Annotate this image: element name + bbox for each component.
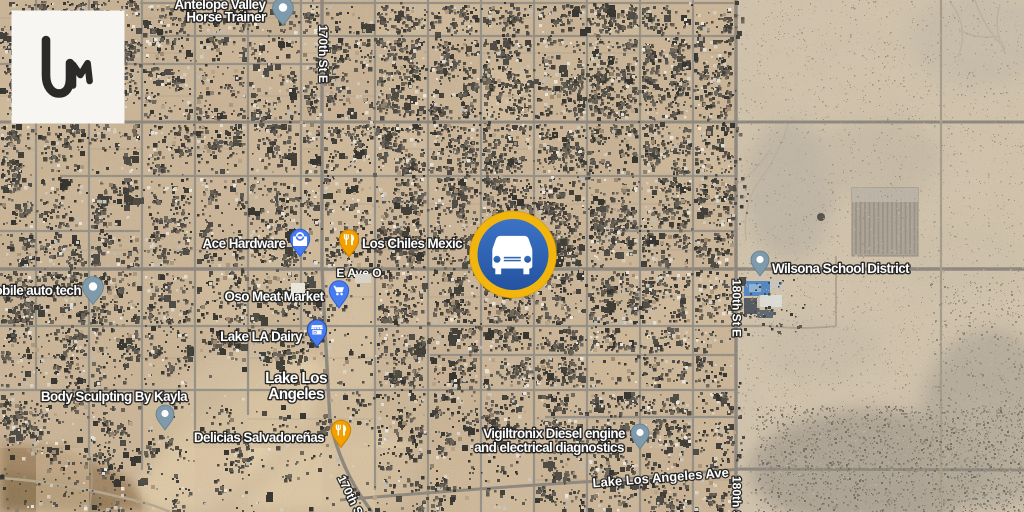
svg-text:Lake LA Dairy: Lake LA Dairy (220, 329, 303, 344)
svg-text:Wilsona School District: Wilsona School District (772, 261, 910, 276)
svg-text:180th St E: 180th St E (730, 279, 744, 337)
svg-text:Los Chiles Mexic: Los Chiles Mexic (362, 236, 463, 251)
svg-text:Lake LosAngeles: Lake LosAngeles (265, 370, 327, 403)
svg-text:Antelope ValleyHorse Trainer: Antelope ValleyHorse Trainer (175, 0, 267, 25)
svg-text:170th St E: 170th St E (316, 25, 330, 83)
svg-text:180th St E: 180th St E (730, 476, 744, 512)
svg-text:Ace Hardware: Ace Hardware (203, 236, 286, 251)
svg-text:Oso Meat Market: Oso Meat Market (224, 289, 324, 304)
svg-text:Vigiltronix Diesel engineand e: Vigiltronix Diesel engineand electrical … (474, 426, 625, 455)
svg-text:Body Sculpting By Kayla: Body Sculpting By Kayla (41, 389, 188, 404)
svg-text:mobile auto tech: mobile auto tech (0, 283, 81, 298)
svg-text:Delicias Salvadoreñas: Delicias Salvadoreñas (194, 430, 324, 445)
